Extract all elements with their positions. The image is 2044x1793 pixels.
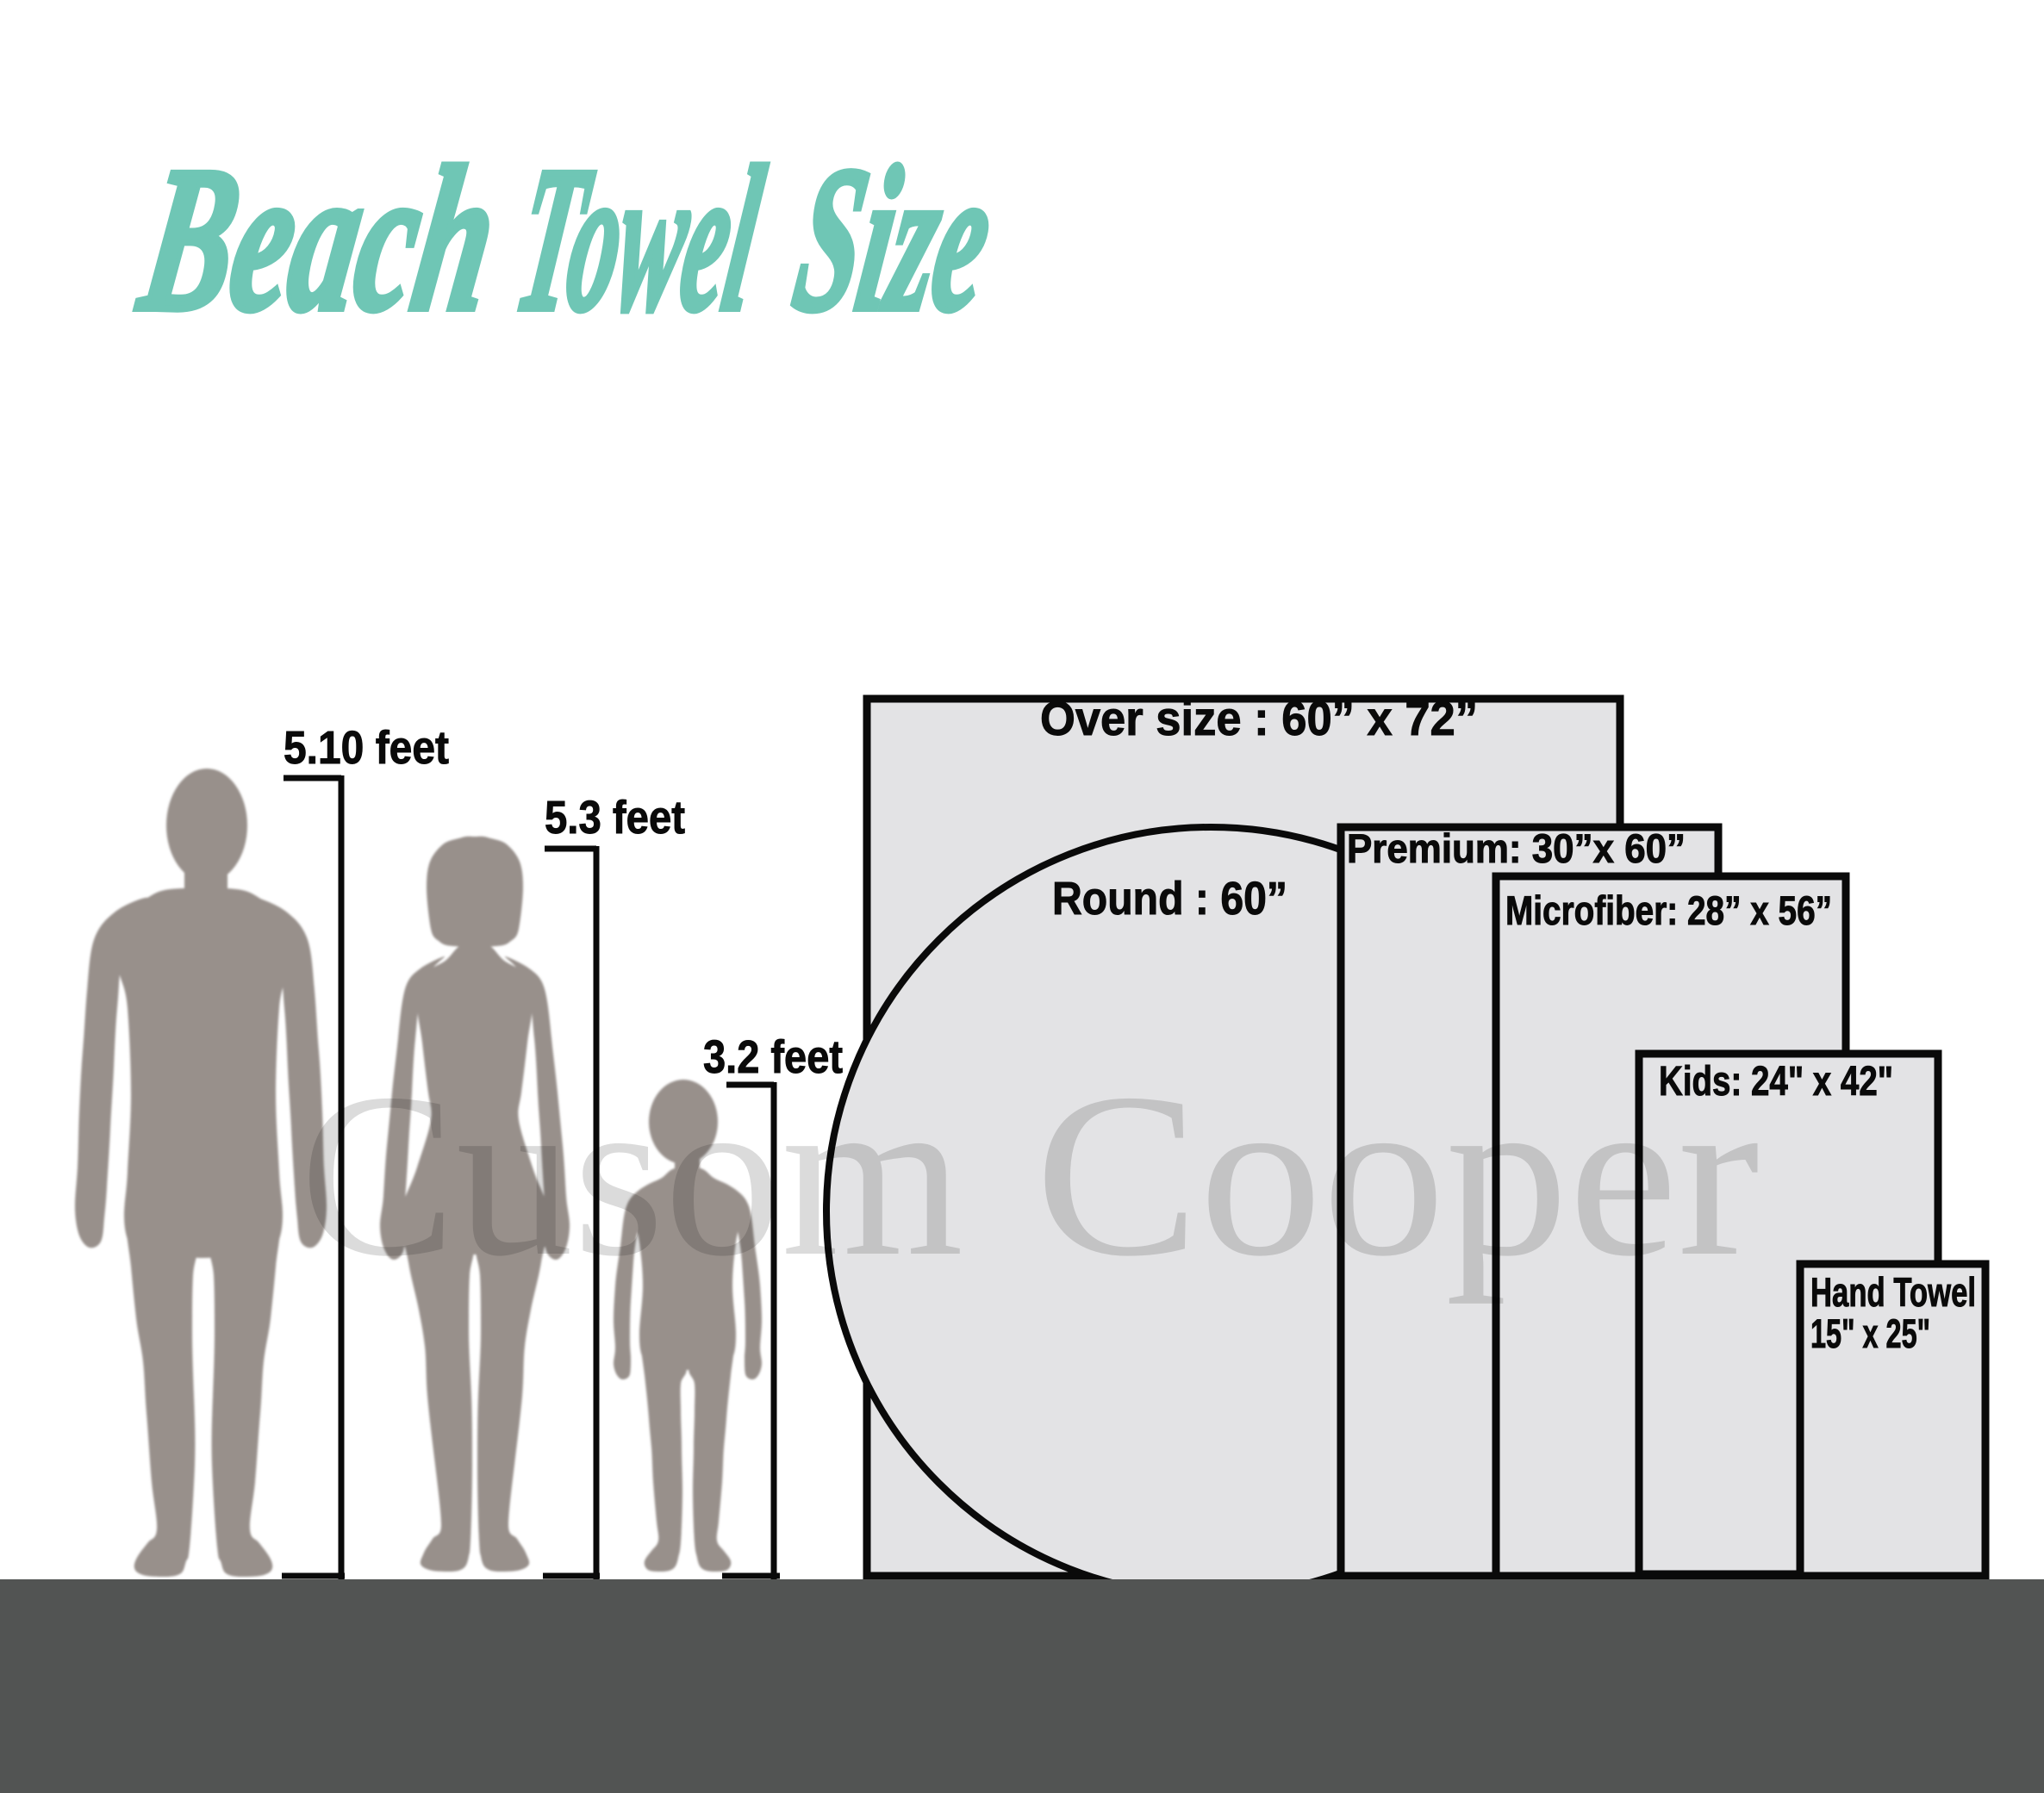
svg-text:Hand Towel: Hand Towel [1810,1269,1976,1315]
svg-text:15" x 25": 15" x 25" [1810,1311,1930,1356]
svg-text:Beach: Beach [128,125,510,353]
svg-text:Towel: Towel [504,125,775,353]
svg-text:5.10 feet: 5.10 feet [284,722,449,774]
svg-text:5.3 feet: 5.3 feet [545,792,685,844]
svg-text:Round : 60”: Round : 60” [1052,873,1287,925]
svg-text:Cooper: Cooper [1035,1045,1760,1305]
svg-text:Microfiber: 28” x 56”: Microfiber: 28” x 56” [1505,887,1832,933]
svg-text:Size: Size [782,125,1006,353]
svg-text:Over size : 60” x 72”: Over size : 60” x 72” [1040,691,1478,745]
svg-text:Cusom: Cusom [300,1045,963,1304]
svg-text:Premium: 30”x 60”: Premium: 30”x 60” [1347,825,1686,871]
